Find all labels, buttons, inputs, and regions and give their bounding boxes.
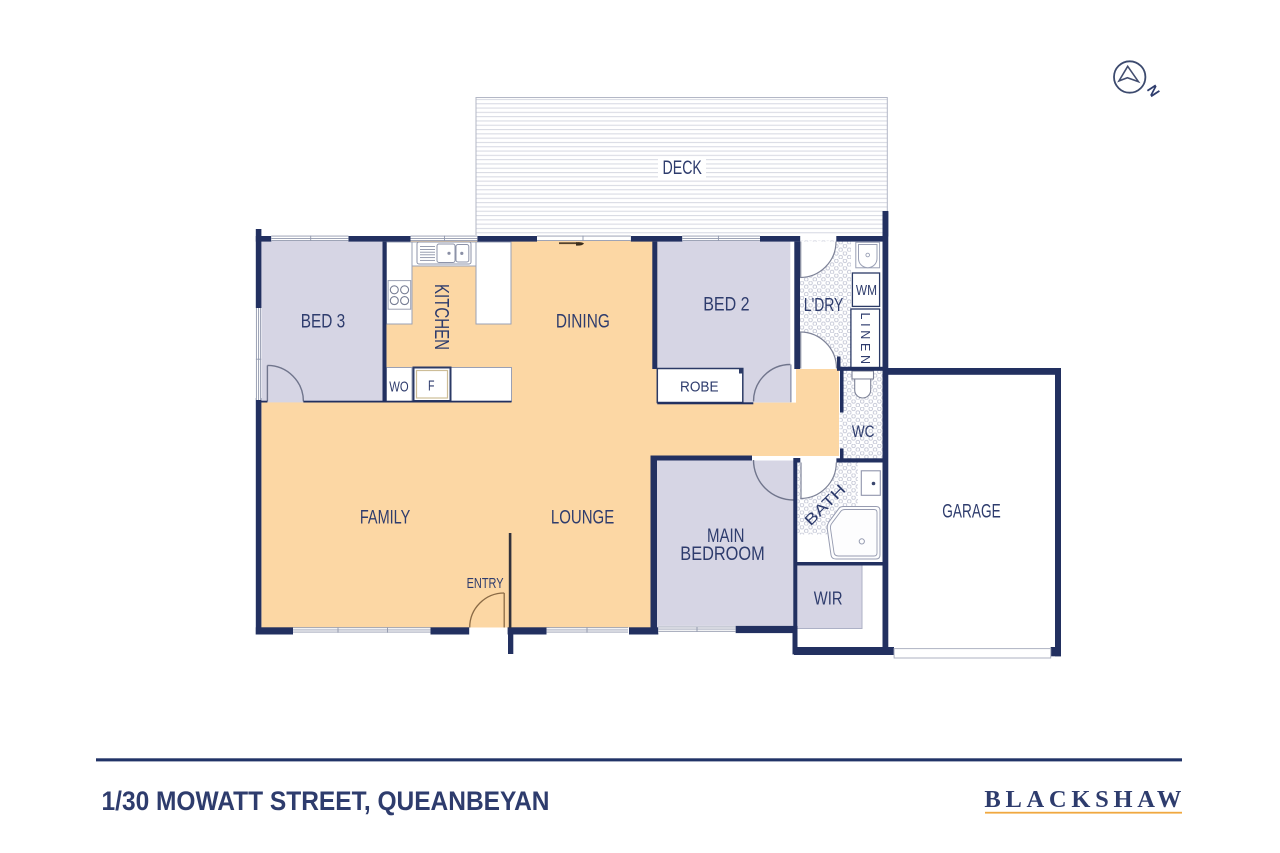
svg-text:N: N [1143,83,1162,101]
svg-text:DECK: DECK [663,158,703,179]
svg-text:1/30 MOWATT STREET, QUEANBEYAN: 1/30 MOWATT STREET, QUEANBEYAN [102,786,550,816]
svg-text:DINING: DINING [556,312,610,333]
svg-text:LOUNGE: LOUNGE [551,507,614,528]
svg-text:KITCHEN: KITCHEN [430,284,452,350]
svg-text:ROBE: ROBE [680,379,719,396]
svg-text:BEDROOM: BEDROOM [680,544,764,565]
svg-text:GARAGE: GARAGE [942,502,1000,523]
svg-text:WC: WC [852,422,875,441]
svg-text:WIR: WIR [814,587,843,608]
svg-text:F: F [428,379,435,395]
svg-text:BED 3: BED 3 [301,312,346,333]
svg-text:ENTRY: ENTRY [467,575,504,592]
svg-text:WO: WO [389,380,408,396]
svg-text:BED 2: BED 2 [703,295,749,316]
svg-text:L'DRY: L'DRY [804,294,843,315]
svg-text:FAMILY: FAMILY [360,507,411,528]
svg-text:BLACKSHAW: BLACKSHAW [984,786,1182,813]
svg-text:WM: WM [856,283,877,299]
